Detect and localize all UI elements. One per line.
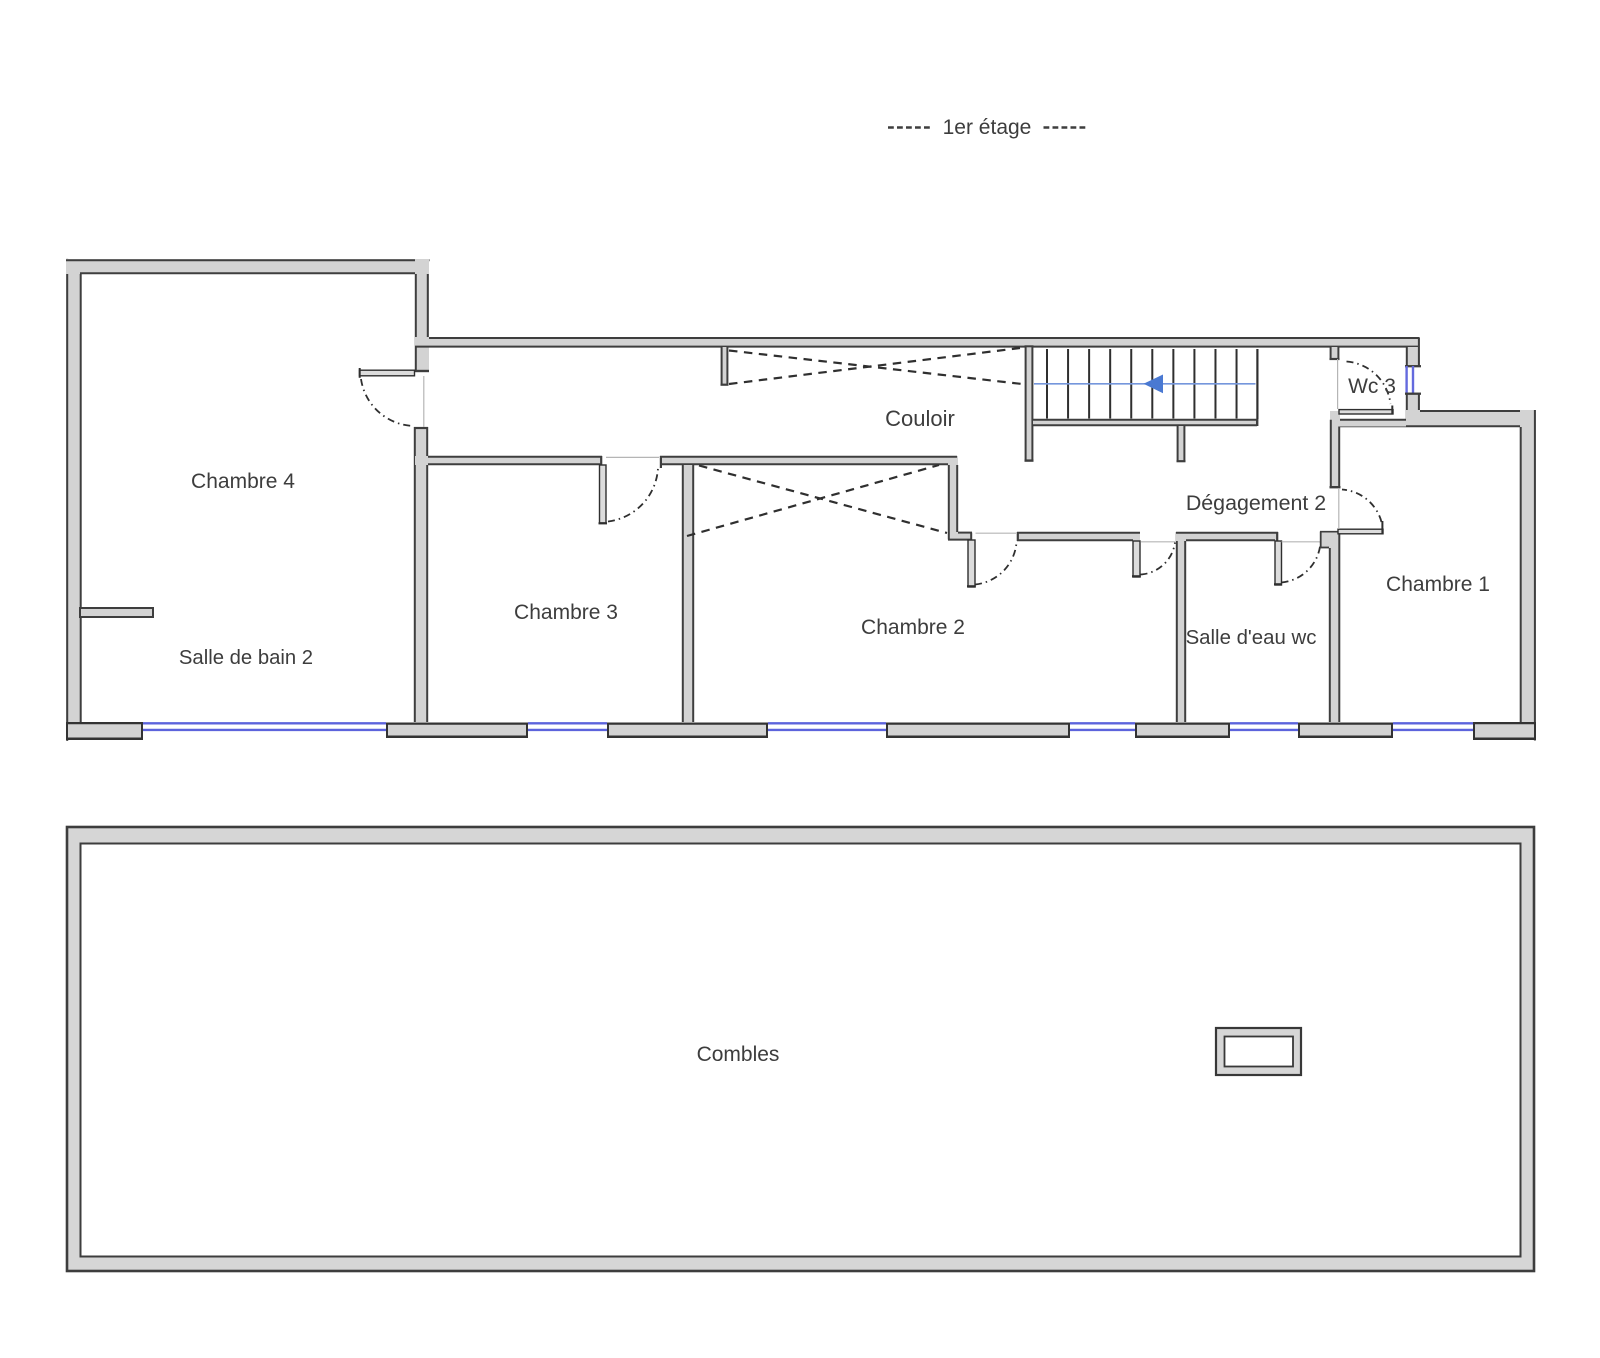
svg-text:1er étage: 1er étage [943,116,1032,139]
svg-text:Salle de bain 2: Salle de bain 2 [179,647,313,669]
svg-text:Chambre 2: Chambre 2 [861,616,965,639]
svg-text:Dégagement 2: Dégagement 2 [1186,491,1326,515]
svg-text:Chambre 3: Chambre 3 [514,601,618,624]
svg-text:Wc 3: Wc 3 [1348,375,1396,398]
svg-text:Chambre 1: Chambre 1 [1386,573,1490,596]
svg-text:Combles: Combles [697,1043,780,1066]
svg-text:Couloir: Couloir [885,406,955,431]
svg-text:Salle d'eau wc: Salle d'eau wc [1186,627,1317,649]
svg-text:Chambre 4: Chambre 4 [191,470,295,493]
